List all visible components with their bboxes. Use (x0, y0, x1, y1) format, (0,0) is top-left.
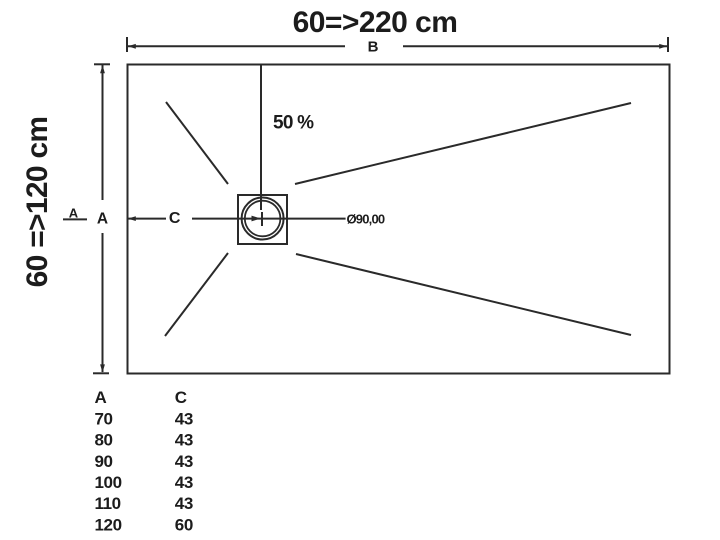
svg-text:60: 60 (175, 515, 193, 534)
svg-text:60=>220 cm: 60=>220 cm (293, 6, 458, 39)
svg-text:120: 120 (95, 515, 122, 534)
svg-text:43: 43 (175, 473, 193, 492)
svg-text:43: 43 (175, 494, 193, 513)
svg-text:70: 70 (95, 409, 113, 428)
svg-text:50 %: 50 % (273, 112, 314, 133)
svg-text:Ø90,00: Ø90,00 (347, 211, 385, 226)
svg-text:80: 80 (95, 431, 113, 450)
svg-text:A: A (69, 206, 79, 221)
svg-text:43: 43 (175, 431, 193, 450)
svg-text:60 =>120 cm: 60 =>120 cm (21, 117, 54, 288)
svg-text:100: 100 (95, 473, 122, 492)
svg-text:C: C (175, 388, 187, 407)
svg-text:43: 43 (175, 409, 193, 428)
svg-text:43: 43 (175, 452, 193, 471)
svg-text:A: A (95, 388, 107, 407)
svg-text:C: C (169, 210, 181, 227)
svg-text:A: A (97, 210, 108, 227)
svg-text:90: 90 (95, 452, 113, 471)
svg-text:B: B (368, 39, 379, 56)
svg-text:110: 110 (95, 494, 121, 513)
